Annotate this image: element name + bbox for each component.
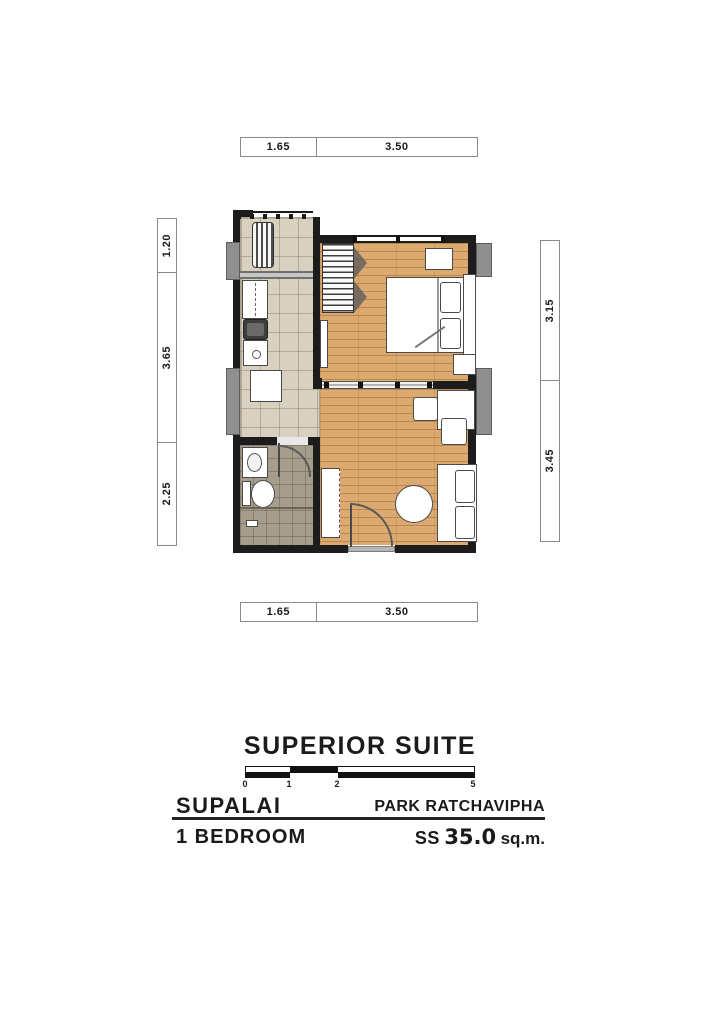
refrigerator-door-line bbox=[255, 283, 256, 316]
column bbox=[226, 368, 240, 435]
area-value: 35.0 bbox=[444, 825, 496, 849]
bedroom-tv-icon bbox=[320, 320, 328, 368]
window-tick bbox=[353, 235, 357, 243]
area-code: SS bbox=[415, 828, 440, 848]
column bbox=[476, 243, 492, 277]
column bbox=[476, 368, 492, 435]
scale-tick-label: 5 bbox=[467, 779, 479, 789]
sofa-cushion bbox=[455, 470, 475, 503]
project-name: PARK RATCHAVIPHA bbox=[305, 798, 545, 818]
wardrobe-door-fold bbox=[354, 281, 367, 313]
wall-bedroom-living-divider bbox=[433, 381, 476, 389]
ac-condenser-unit-icon bbox=[252, 222, 274, 268]
nightstand-icon bbox=[425, 248, 453, 270]
washbasin-icon bbox=[242, 447, 268, 478]
stove-top bbox=[247, 323, 264, 336]
pillow-icon bbox=[440, 282, 461, 313]
nightstand-icon bbox=[453, 354, 476, 375]
wall-top-corner bbox=[233, 210, 253, 217]
kitchen-table-icon bbox=[250, 370, 282, 402]
entry-threshold bbox=[348, 546, 395, 552]
scale-tick-label: 1 bbox=[283, 779, 295, 789]
washbasin-bowl bbox=[247, 453, 262, 472]
plan-title: SUPERIOR SUITE bbox=[160, 732, 560, 762]
window-tick bbox=[396, 235, 400, 243]
wall-bathroom-top bbox=[233, 437, 277, 445]
scale-segment bbox=[246, 772, 290, 777]
wall-bottom-left bbox=[233, 545, 348, 553]
sofa-cushion bbox=[455, 506, 475, 539]
scale-segment bbox=[290, 772, 338, 778]
sliding-door-tick bbox=[324, 382, 329, 388]
scale-segment bbox=[338, 772, 474, 777]
refrigerator-icon bbox=[242, 280, 268, 319]
sliding-door-tick bbox=[395, 382, 400, 388]
scale-bar-row-bottom bbox=[246, 772, 474, 777]
sliding-door-tick bbox=[427, 382, 432, 388]
sliding-door-tick bbox=[358, 382, 363, 388]
area-unit: sq.m. bbox=[501, 829, 545, 848]
floor-plan bbox=[0, 0, 724, 1024]
shower-divider-line bbox=[240, 507, 313, 509]
unit-area: SS 35.0 sq.m. bbox=[305, 825, 545, 851]
bed-headboard bbox=[463, 274, 476, 355]
floor-drain-icon bbox=[246, 520, 258, 527]
kitchen-sink-icon bbox=[243, 340, 268, 366]
toilet-bowl bbox=[251, 480, 275, 508]
scale-tick-label: 2 bbox=[331, 779, 343, 789]
wardrobe-icon bbox=[322, 243, 354, 313]
chair-icon bbox=[413, 397, 438, 421]
bathroom-door-opening bbox=[277, 437, 308, 445]
wall-divider-stub bbox=[313, 378, 322, 389]
wardrobe-door-fold bbox=[354, 247, 367, 279]
column bbox=[226, 242, 240, 280]
chair-icon bbox=[441, 418, 467, 445]
sink-drain bbox=[252, 350, 261, 359]
pillow-icon bbox=[440, 318, 461, 349]
tv-cabinet-icon bbox=[321, 468, 340, 538]
bed-sheet-line bbox=[437, 278, 439, 352]
wall-bathroom-right bbox=[313, 437, 320, 553]
toilet-tank bbox=[242, 481, 251, 506]
sliding-door bbox=[322, 381, 433, 389]
wall-bedroom-top-left bbox=[313, 235, 353, 243]
round-table-icon bbox=[395, 485, 433, 523]
balcony-kitchen-divider bbox=[240, 271, 320, 279]
scale-tick-label: 0 bbox=[239, 779, 251, 789]
divider-line bbox=[172, 817, 545, 820]
stove-icon bbox=[243, 319, 268, 340]
scale-bar bbox=[245, 766, 475, 778]
wall-bottom-right bbox=[395, 545, 476, 553]
